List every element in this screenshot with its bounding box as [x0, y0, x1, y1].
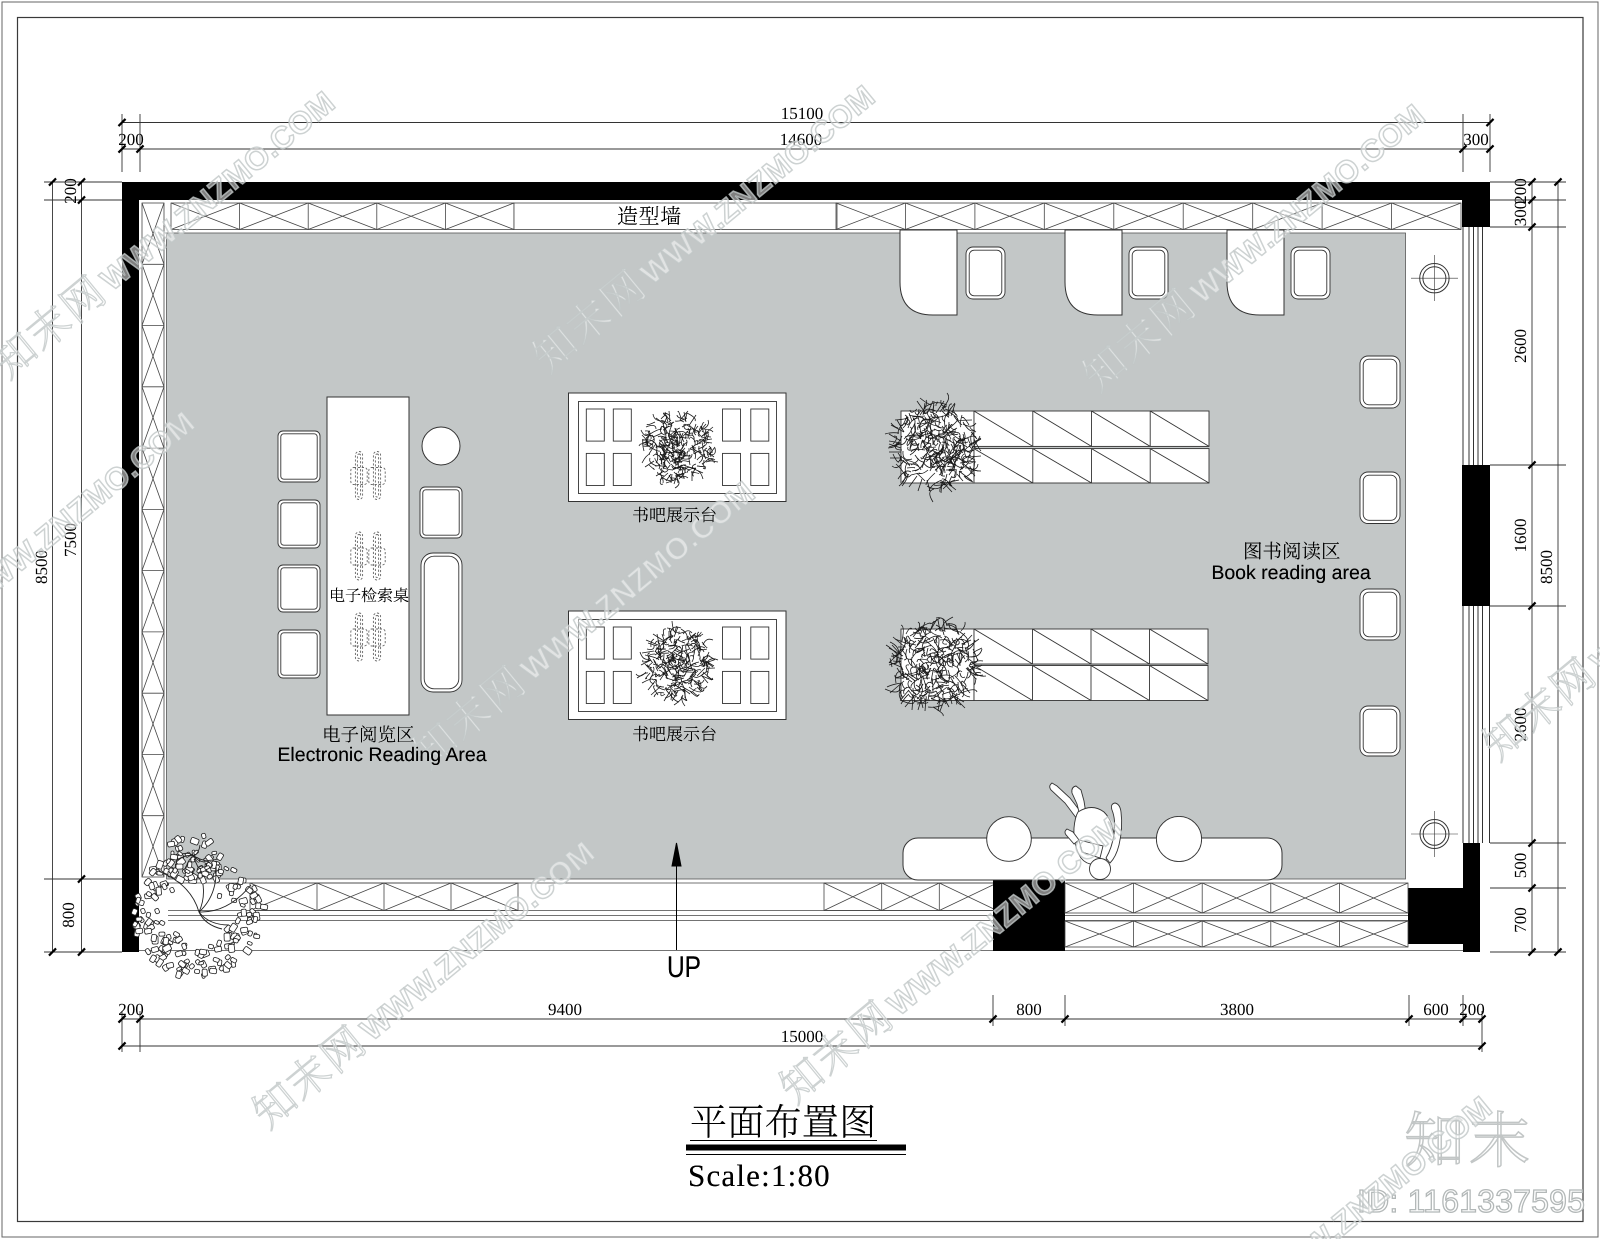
svg-text:200: 200 — [1511, 178, 1530, 204]
svg-text:800: 800 — [1016, 1000, 1042, 1019]
svg-text:3800: 3800 — [1220, 1000, 1254, 1019]
svg-text:UP: UP — [667, 951, 701, 984]
svg-text:700: 700 — [1511, 907, 1530, 933]
svg-text:8500: 8500 — [1537, 550, 1556, 584]
svg-text:Scale:1:80: Scale:1:80 — [688, 1158, 831, 1193]
svg-text:2600: 2600 — [1511, 329, 1530, 363]
svg-text:800: 800 — [59, 902, 78, 928]
svg-text:9400: 9400 — [548, 1000, 582, 1019]
svg-text:Book reading area: Book reading area — [1211, 562, 1371, 584]
svg-text:300: 300 — [1463, 130, 1489, 149]
svg-text:600: 600 — [1423, 1000, 1449, 1019]
svg-text:1600: 1600 — [1511, 519, 1530, 553]
svg-text:Electronic Reading Area: Electronic Reading Area — [277, 744, 486, 766]
svg-text:200: 200 — [61, 178, 80, 204]
svg-text:200: 200 — [118, 1000, 144, 1019]
svg-text:200: 200 — [118, 130, 144, 149]
svg-text:200: 200 — [1459, 1000, 1485, 1019]
svg-text:300: 300 — [1511, 201, 1530, 227]
svg-text:15000: 15000 — [781, 1027, 824, 1046]
svg-text:500: 500 — [1511, 853, 1530, 879]
